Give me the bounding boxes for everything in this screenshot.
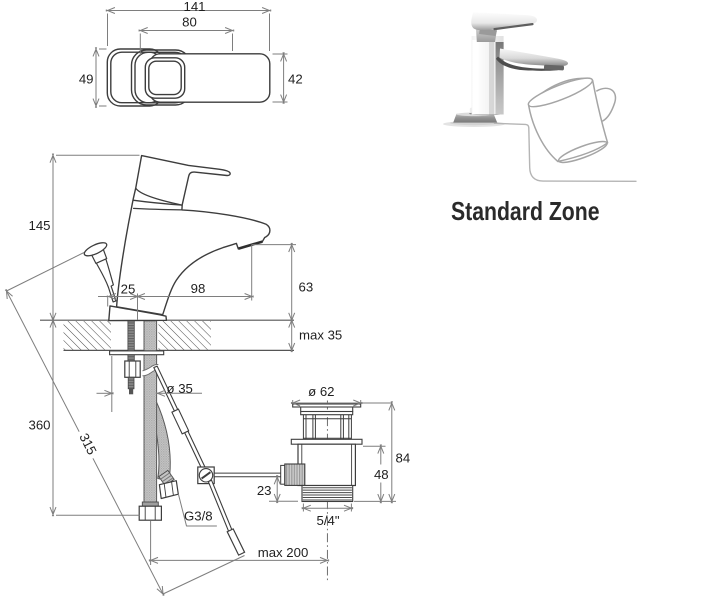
svg-text:ø 62: ø 62 [308,384,334,399]
svg-text:48: 48 [374,467,389,482]
svg-text:63: 63 [299,280,314,295]
svg-text:ø 35: ø 35 [167,381,193,396]
svg-text:98: 98 [191,281,206,296]
svg-text:80: 80 [182,15,197,30]
svg-text:84: 84 [396,451,411,466]
svg-text:max 35: max 35 [299,327,342,342]
svg-text:49: 49 [79,72,94,87]
svg-text:max 200: max 200 [258,545,309,560]
svg-text:145: 145 [28,218,50,233]
svg-text:25: 25 [121,282,136,297]
svg-text:141: 141 [183,0,205,14]
svg-text:360: 360 [28,418,50,433]
svg-text:5/4": 5/4" [316,513,339,528]
svg-text:G3/8: G3/8 [184,509,213,524]
svg-text:Standard Zone: Standard Zone [451,196,600,226]
svg-text:23: 23 [257,483,272,498]
svg-text:42: 42 [288,72,303,87]
